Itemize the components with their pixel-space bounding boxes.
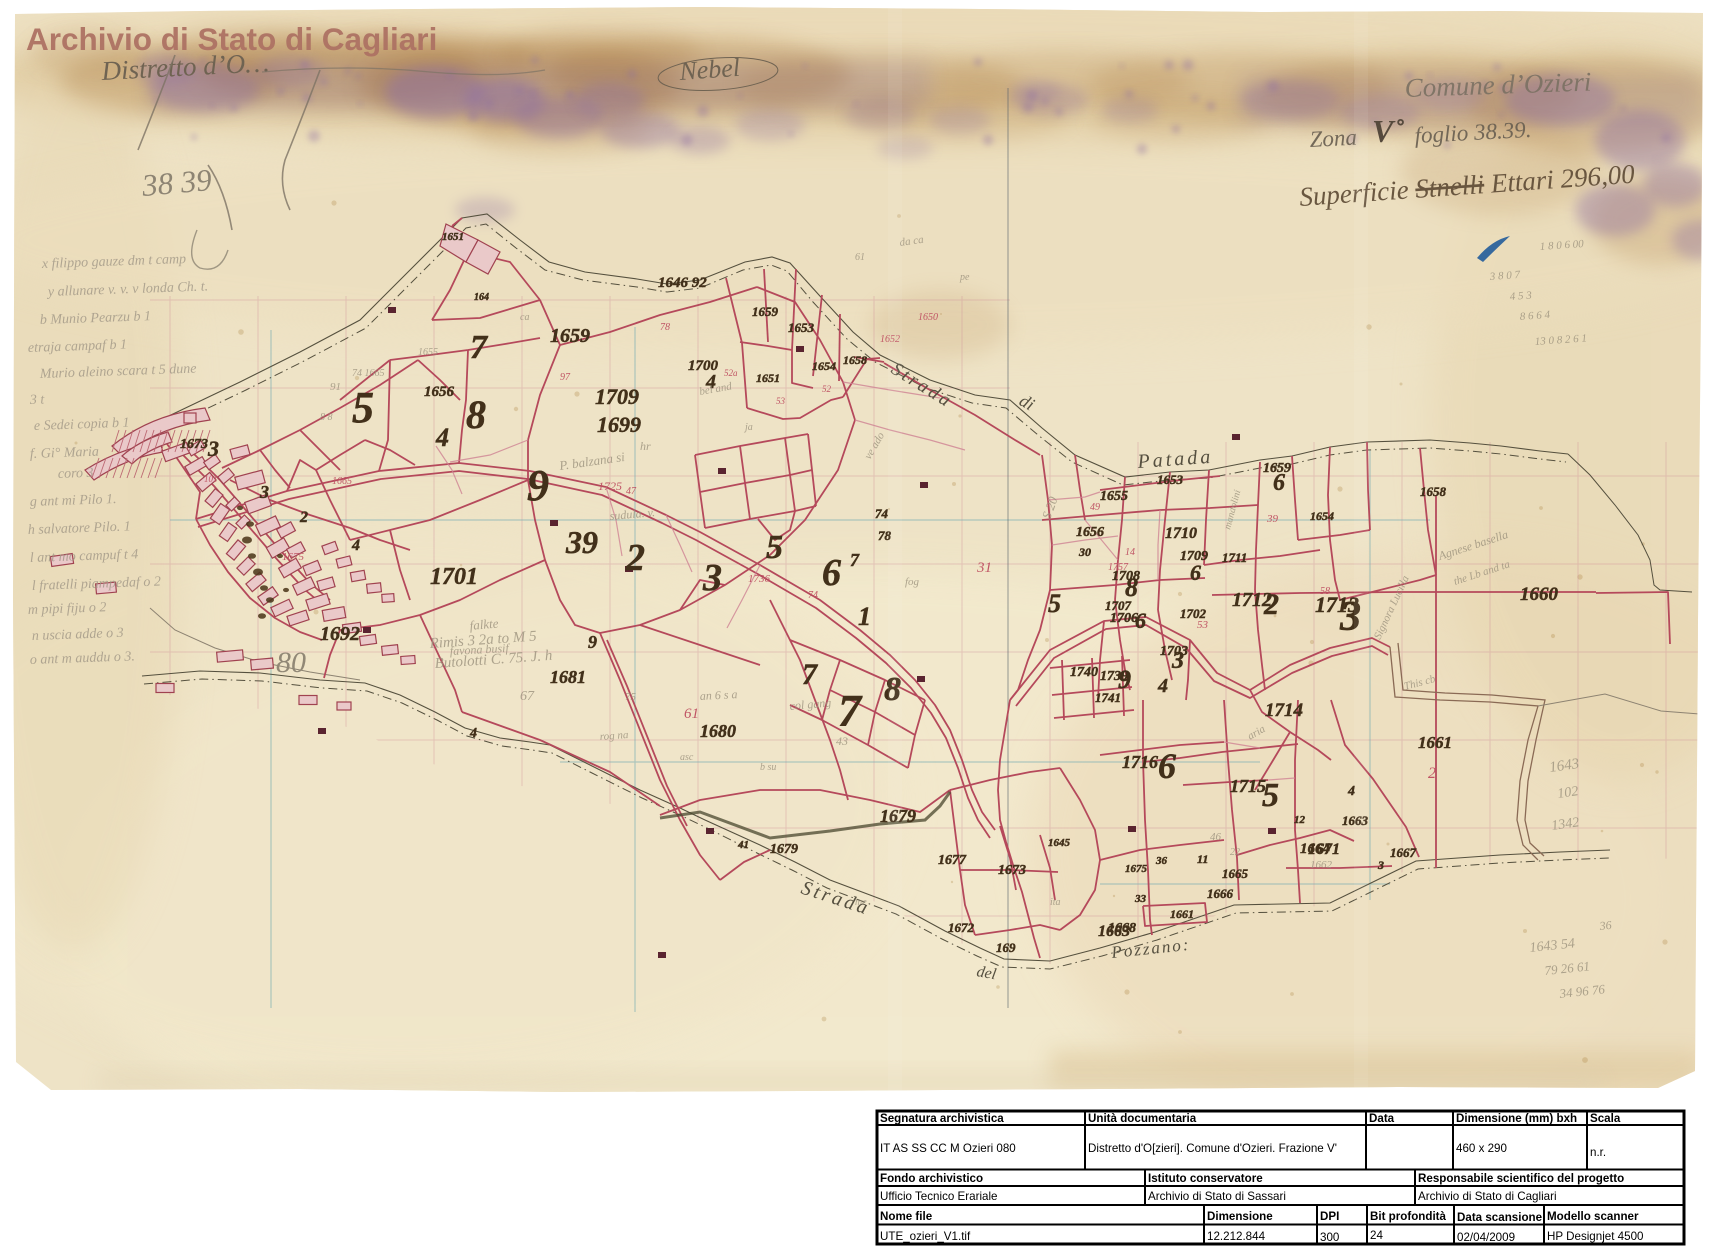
svg-text:Archivio di Stato di Cagliari: Archivio di Stato di Cagliari (1418, 1190, 1557, 1203)
svg-text:Dimensione: Dimensione (1207, 1210, 1273, 1223)
svg-text:Scala: Scala (1590, 1112, 1621, 1125)
svg-text:Data scansione: Data scansione (1457, 1211, 1543, 1224)
svg-text:DPI: DPI (1320, 1210, 1339, 1223)
svg-text:Dimensione (mm) bxh: Dimensione (mm) bxh (1456, 1112, 1577, 1125)
svg-text:Istituto conservatore: Istituto conservatore (1148, 1172, 1263, 1185)
svg-text:300: 300 (1320, 1231, 1339, 1244)
svg-text:Fondo archivistico: Fondo archivistico (880, 1172, 983, 1185)
svg-text:02/04/2009: 02/04/2009 (1457, 1231, 1515, 1244)
svg-text:Distretto d'O[zieri]. Comune d: Distretto d'O[zieri]. Comune d'Ozieri. F… (1088, 1142, 1337, 1155)
svg-text:Ufficio Tecnico Erariale: Ufficio Tecnico Erariale (880, 1190, 998, 1203)
svg-text:24: 24 (1370, 1229, 1383, 1242)
svg-text:n.r.: n.r. (1590, 1146, 1606, 1159)
svg-text:12.212.844: 12.212.844 (1207, 1230, 1266, 1243)
svg-text:IT AS SS CC M Ozieri 080: IT AS SS CC M Ozieri 080 (880, 1142, 1016, 1155)
svg-text:UTE_ozieri_V1.tif: UTE_ozieri_V1.tif (880, 1230, 971, 1243)
svg-text:Data: Data (1369, 1112, 1395, 1125)
svg-text:HP Designjet 4500: HP Designjet 4500 (1547, 1230, 1643, 1243)
svg-text:Archivio di Stato di Sassari: Archivio di Stato di Sassari (1148, 1190, 1286, 1203)
svg-text:Nome file: Nome file (880, 1210, 933, 1223)
svg-text:Unità documentaria: Unità documentaria (1088, 1112, 1197, 1125)
svg-text:Segnatura archivistica: Segnatura archivistica (880, 1112, 1004, 1125)
svg-text:Responsabile scientifico del p: Responsabile scientifico del progetto (1418, 1172, 1624, 1185)
svg-text:460 x 290: 460 x 290 (1456, 1142, 1507, 1155)
svg-text:Bit profondità: Bit profondità (1370, 1210, 1447, 1223)
svg-text:Modello scanner: Modello scanner (1547, 1210, 1639, 1223)
